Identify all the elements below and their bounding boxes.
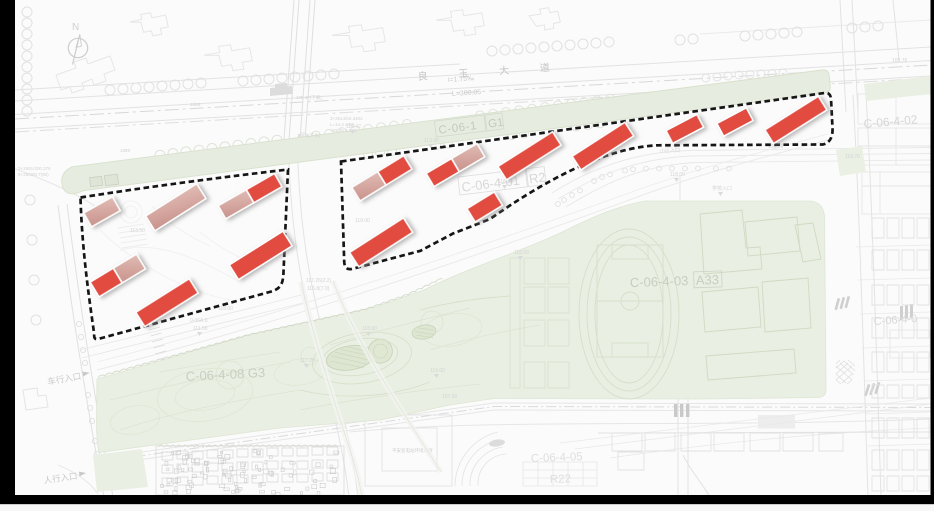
svg-text:1988: 1988 (120, 148, 131, 153)
svg-text:3+2514/04.3402: 3+2514/04.3402 (330, 116, 363, 121)
svg-text:118.00: 118.00 (218, 306, 233, 312)
svg-text:118.00: 118.00 (514, 250, 529, 256)
svg-text:116.8(7.0): 116.8(7.0) (307, 286, 330, 292)
svg-text:119.00: 119.00 (430, 368, 445, 374)
svg-text:116.42: 116.42 (346, 124, 361, 130)
svg-text:118.70: 118.70 (845, 154, 860, 160)
svg-text:学校入口: 学校入口 (712, 185, 732, 192)
svg-text:117.20: 117.20 (300, 358, 315, 364)
svg-text:N: N (72, 22, 79, 33)
svg-text:C-06-4-05: C-06-4-05 (531, 451, 583, 465)
svg-text:3+2591/200.376: 3+2591/200.376 (18, 166, 51, 171)
svg-text:108.76: 108.76 (892, 58, 908, 64)
svg-text:5+25/308.7(90): 5+25/308.7(90) (18, 172, 49, 177)
svg-text:小区入口: 小区入口 (660, 147, 680, 154)
svg-text:113.50: 113.50 (130, 228, 145, 234)
svg-text:107.50: 107.50 (442, 394, 458, 400)
svg-text:118.00: 118.00 (670, 172, 685, 178)
svg-text:117.26(2.2): 117.26(2.2) (306, 278, 332, 284)
svg-text:108 2(下水): 108 2(下水) (297, 132, 321, 139)
svg-text:118.00: 118.00 (355, 218, 370, 224)
svg-text:C-06-4-03: C-06-4-03 (630, 273, 689, 290)
svg-text:A33: A33 (696, 272, 720, 288)
svg-text:111.50: 111.50 (193, 326, 208, 332)
svg-text:113.96: 113.96 (424, 138, 439, 144)
svg-text:G1: G1 (487, 117, 504, 131)
svg-text:186B: 186B (190, 102, 201, 107)
svg-text:116.30: 116.30 (498, 179, 513, 185)
svg-text:0-06A.0: 0-06A.0 (190, 318, 208, 324)
svg-text:118.00: 118.00 (362, 326, 377, 332)
svg-text:R2: R2 (528, 170, 546, 187)
svg-text:R22: R22 (550, 473, 572, 486)
